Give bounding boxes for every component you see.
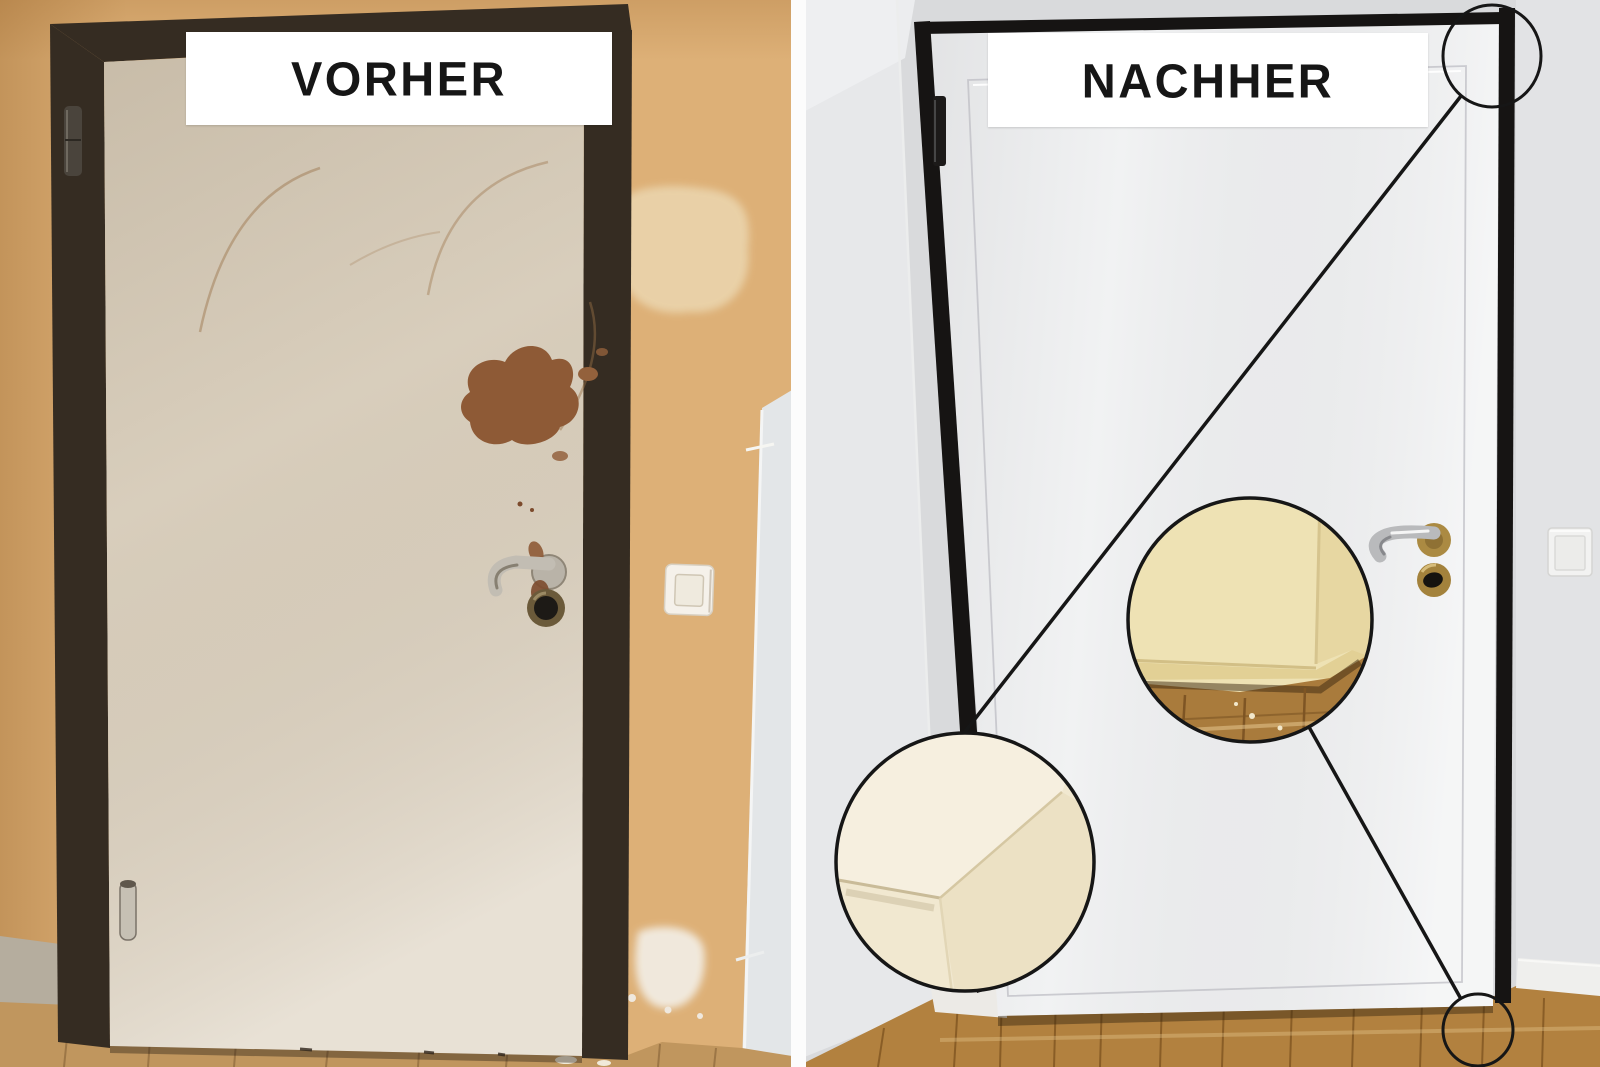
before-frame-right (582, 30, 632, 1060)
switch-rocker (1555, 536, 1585, 570)
wall-paint-speck (628, 994, 636, 1002)
photo-scene (0, 0, 1600, 1067)
before-door-shading (104, 38, 584, 1056)
before-top-hinge (64, 106, 82, 176)
floor-pipe (120, 880, 136, 940)
wall-paint-speck (665, 1007, 672, 1014)
after-label: NACHHER (1082, 52, 1335, 108)
after-wall-right-glow (1516, 0, 1600, 990)
after-photo (792, 0, 1600, 1067)
before-light-switch (664, 564, 714, 616)
before-label-banner: VORHER (186, 32, 612, 125)
after-light-switch (1548, 528, 1592, 576)
handle-lever-highlight (1392, 531, 1428, 533)
switch-rocker (675, 574, 704, 606)
floor-paint-chip (597, 1060, 611, 1066)
after-label-banner: NACHHER (988, 33, 1428, 127)
photo-divider (791, 0, 806, 1067)
keyhole-cylinder (534, 596, 558, 620)
before-label: VORHER (291, 50, 507, 106)
before-after-collage: VORHER NACHHER (0, 0, 1600, 1067)
before-frame-left (50, 24, 110, 1048)
wall-paint-speck (697, 1013, 703, 1019)
before-photo (0, 0, 792, 1067)
wall-spackle-patch-large (620, 186, 749, 313)
